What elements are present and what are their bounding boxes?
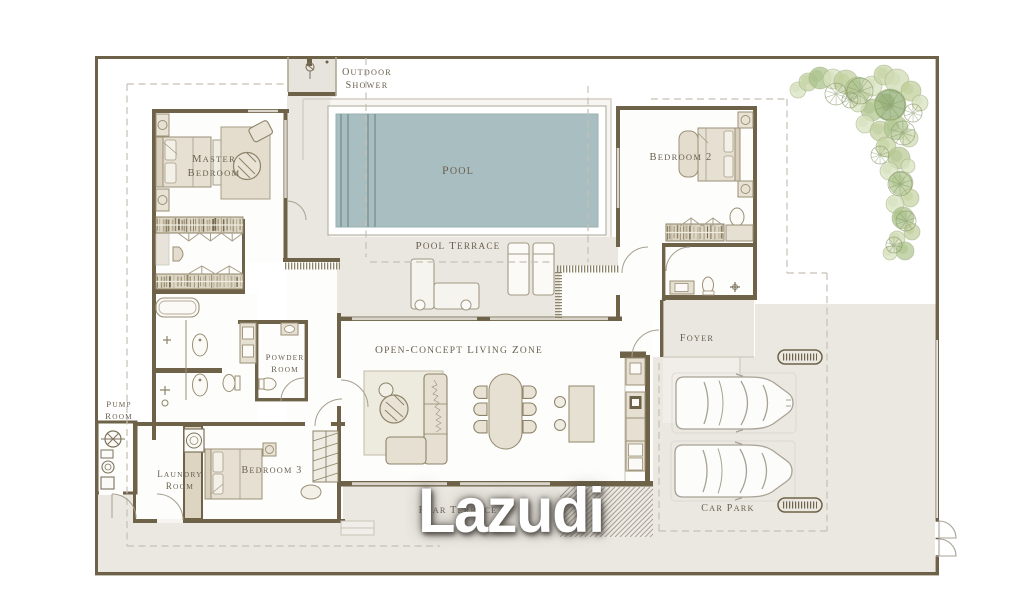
svg-text:OUTDOOR: OUTDOOR	[342, 67, 392, 78]
svg-text:CAR PARK: CAR PARK	[701, 503, 754, 514]
svg-text:MASTER: MASTER	[192, 154, 236, 165]
svg-text:LAUNDRY: LAUNDRY	[157, 469, 203, 479]
svg-text:SHOWER: SHOWER	[346, 80, 389, 91]
svg-text:BEDROOM 3: BEDROOM 3	[242, 465, 303, 476]
svg-text:OPEN-CONCEPT LIVING ZONE: OPEN-CONCEPT LIVING ZONE	[375, 344, 543, 356]
svg-text:ROOM: ROOM	[271, 364, 299, 374]
svg-text:BEDROOM: BEDROOM	[188, 168, 241, 179]
svg-text:ROOM: ROOM	[166, 481, 194, 491]
svg-text:POWDER: POWDER	[266, 352, 305, 362]
svg-text:POOL: POOL	[442, 163, 474, 177]
svg-text:ROOM: ROOM	[105, 411, 133, 421]
svg-text:PUMP: PUMP	[106, 399, 132, 409]
svg-text:FOYER: FOYER	[680, 333, 714, 344]
svg-text:POOL TERRACE: POOL TERRACE	[416, 240, 501, 252]
svg-text:BEDROOM 2: BEDROOM 2	[650, 152, 713, 163]
